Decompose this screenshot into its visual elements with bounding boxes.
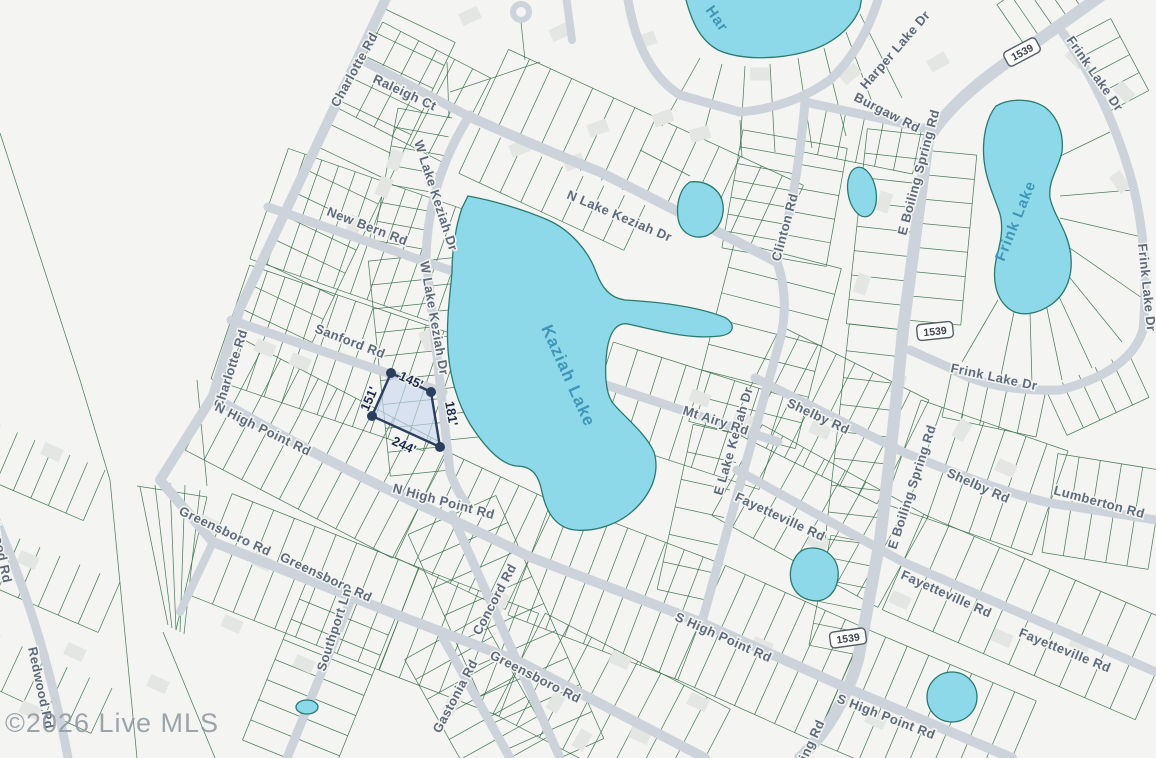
plat-map[interactable]: 145' 181' 244' 151' Charlotte Rd Charlot… — [0, 0, 1156, 758]
parcel-corner-dot — [386, 368, 396, 378]
route-shield-1539: 1539 — [916, 321, 953, 341]
svg-text:1539: 1539 — [923, 325, 948, 339]
pond-south-center — [790, 548, 838, 601]
watermark: ©2026 Live MLS — [5, 708, 219, 738]
pond-ne — [678, 182, 724, 237]
map-canvas[interactable]: 145' 181' 244' 151' Charlotte Rd Charlot… — [0, 0, 1156, 758]
parcel-corner-dot — [435, 442, 445, 452]
pond-tiny — [296, 700, 318, 714]
parcel-corner-dot — [426, 387, 436, 397]
pond-south-east — [927, 672, 977, 722]
